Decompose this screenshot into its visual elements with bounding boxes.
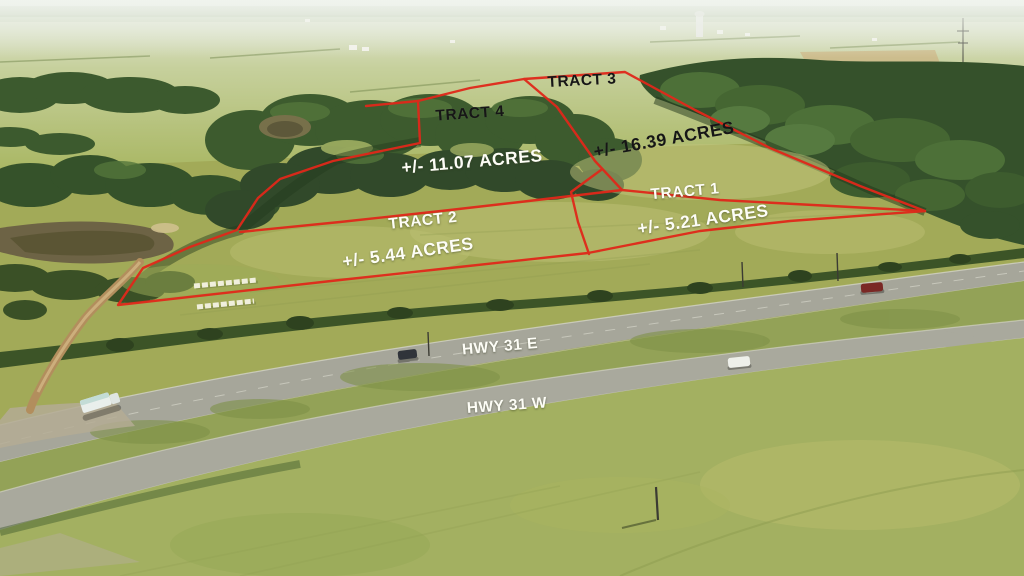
aerial-photo-scene — [0, 0, 1024, 576]
vehicle-car-eastbound-dark — [396, 349, 418, 363]
tract-3-label: TRACT 3 — [547, 71, 617, 90]
aerial-property-photo: TRACT 4 +/- 11.07 ACRES TRACT 3 +/- 16.3… — [0, 0, 1024, 576]
vehicle-car-westbound-white — [727, 356, 752, 370]
pond-small-central — [259, 115, 311, 139]
vehicle-car-eastbound-maroon — [860, 282, 885, 295]
horizon-haze — [0, 0, 1024, 58]
